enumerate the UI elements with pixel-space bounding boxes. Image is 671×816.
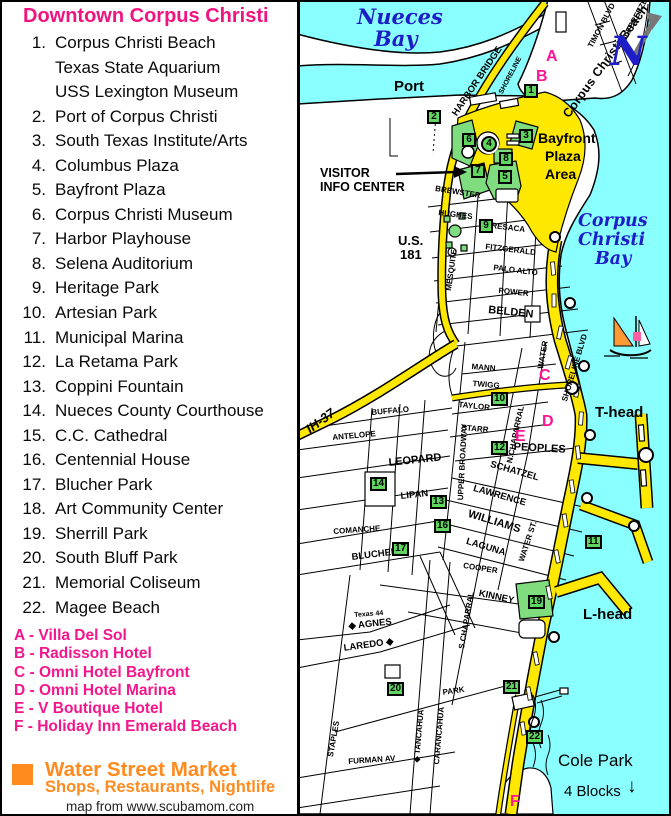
street-label-staples: STAPLES [326,720,341,757]
street-label-power: POWER [498,286,529,298]
legend-item-label: C.C. Cathedral [55,424,167,449]
map-credit: map from www.scubamom.com [66,799,254,814]
legend-item-19: 19.Sherrill Park [2,522,297,547]
street-label-laredo: LAREDO ◆ [343,636,394,654]
market-subtitle: Shops, Restaurants, Nightlife [45,779,275,796]
legend-item-label: Texas State Aquarium [55,56,220,81]
legend-item-label: Sherrill Park [55,522,148,547]
map-text-t-head: T-head [595,404,643,421]
street-label-antelope: ANTELOPE [332,429,376,442]
street-label-belden: BELDEN [488,304,534,321]
map-text-: ↓ [627,776,637,798]
legend-item-15: 15.C.C. Cathedral [2,424,297,449]
map-marker-11: 11 [585,535,602,549]
legend-item-number: 16. [2,448,55,473]
legend-item-number: 1. [2,31,55,56]
legend-hotels-list: A - Villa Del SolB - Radisson HotelC - O… [14,627,237,737]
legend-item-number: 17. [2,473,55,498]
street-label-park: PARK [442,685,465,697]
legend-hotel-c: C - Omni Hotel Bayfront [14,664,237,682]
water-street-market-entry: Water Street Market Shops, Restaurants, … [12,760,275,796]
legend-item-label: Columbus Plaza [55,154,179,179]
map-text-l-head: L-head [583,606,632,623]
street-label-furman-av: FURMAN AV [348,754,396,766]
map-letter-a: A [546,48,558,66]
map-letter-e: E [515,428,526,446]
legend-item-label: South Bluff Park [55,546,178,571]
legend-item-number: 18. [2,497,55,522]
street-label-lawrence: LAWRENCE [472,483,527,509]
legend-item-1-line3: USS Lexington Museum [2,80,297,105]
legend-item-17: 17.Blucher Park [2,473,297,498]
legend-item-1: 1.Corpus Christi Beach [2,31,297,56]
legend-item-label: La Retama Park [55,350,178,375]
map-text-christi: Christi [578,230,645,250]
map-marker-5: 5 [498,170,512,184]
legend-item-label: USS Lexington Museum [55,80,238,105]
legend-item-13: 13.Coppini Fountain [2,375,297,400]
street-label-brewster: BREWSTER [435,184,482,200]
street-label-shoreline: SHORELINE [498,56,523,95]
street-label-hughes: HUGHES [438,208,473,221]
map-marker-8: 8 [499,152,513,166]
legend-item-number: 14. [2,399,55,424]
legend-item-4: 4.Columbus Plaza [2,154,297,179]
map-marker-12: 12 [491,441,508,455]
map-text-u-s: U.S. [398,233,423,248]
map-text-visitor: VISITOR [320,166,370,180]
street-label-williams: WILLIAMS [466,508,522,535]
legend-item-label: Harbor Playhouse [55,227,191,252]
map-text-bay: Bay [595,249,631,269]
page-title: Downtown Corpus Christi [23,5,269,28]
street-label-laguna: LAGUNA [465,536,507,558]
legend-item-number: 5. [2,178,55,203]
legend-item-11: 11.Municipal Marina [2,326,297,351]
map-letter-c: C [539,367,551,385]
map-text-port: Port [394,78,424,95]
map-marker-2: 2 [427,110,441,124]
legend-item-number: 8. [2,252,55,277]
legend-item-number: 11. [2,326,55,351]
map-marker-17: 17 [392,542,409,556]
legend-list: 1.Corpus Christi BeachTexas State Aquari… [2,31,297,620]
market-title: Water Street Market [45,760,275,779]
legend-item-22: 22.Magee Beach [2,596,297,621]
legend-item-number: 22. [2,596,55,621]
map-marker-13: 13 [430,495,447,509]
map-text-plaza: Plaza [545,148,581,164]
legend-item-5: 5.Bayfront Plaza [2,178,297,203]
map-marker-3: 3 [519,129,533,143]
legend-item-label: Municipal Marina [55,326,184,351]
legend-item-21: 21.Memorial Coliseum [2,571,297,596]
map-text-corpus: Corpus [578,211,648,231]
legend-item-number: 12. [2,350,55,375]
map-text-bayfront: Bayfront [538,130,596,146]
map-text-ih-37: IH-37 [303,405,338,436]
legend-item-label: Coppini Fountain [55,375,184,400]
street-label-palo-alto: PALO ALTO [493,263,538,277]
legend-item-label: Centennial House [55,448,190,473]
legend-item-label: Selena Auditorium [55,252,193,277]
map-marker-10: 10 [491,392,508,406]
legend-item-number: 2. [2,105,55,130]
orange-square-icon [12,764,33,785]
legend-item-10: 10.Artesian Park [2,301,297,326]
street-label-kinney: KINNEY [478,588,515,606]
legend-item-label: Corpus Christi Museum [55,203,233,228]
map-letter-b: B [536,68,548,86]
street-label-fitzgerald: FITZGERALD [485,242,536,257]
street-label-carancahua: CARANCAHUA [432,706,446,764]
map-marker-4: 4 [481,136,497,152]
street-label-water: WATER [536,340,550,369]
legend-item-number: 4. [2,154,55,179]
street-label-taylor: TAYLOR [458,400,490,412]
map-text-bay: Bay [374,26,418,51]
legend-item-label: Nueces County Courthouse [55,399,264,424]
legend-item-label: Bayfront Plaza [55,178,166,203]
legend-item-number: 7. [2,227,55,252]
map-marker-9: 9 [479,219,493,233]
legend-item-label: Memorial Coliseum [55,571,200,596]
map-text-n: N [610,28,647,75]
legend-hotel-b: B - Radisson Hotel [14,645,237,663]
legend-item-7: 7.Harbor Playhouse [2,227,297,252]
street-label-lipan: LIPAN [400,488,429,502]
legend-item-2: 2.Port of Corpus Christi [2,105,297,130]
legend-item-number: 9. [2,276,55,301]
map-marker-16: 16 [434,519,451,533]
map-marker-14: 14 [370,477,387,491]
legend-hotel-a: A - Villa Del Sol [14,627,237,645]
legend-item-label: South Texas Institute/Arts [55,129,247,154]
street-label-resaca: RESACA [491,221,526,234]
legend-item-label: Blucher Park [55,473,152,498]
legend-hotel-d: D - Omni Hotel Marina [14,682,237,700]
street-label-tancahua: ◆ TANCAHUA [412,709,426,763]
legend-item-6: 6.Corpus Christi Museum [2,203,297,228]
street-label-buffalo: BUFFALO [371,405,409,417]
legend-item-8: 8.Selena Auditorium [2,252,297,277]
street-label-mann: MANN [471,362,496,373]
legend-item-20: 20.South Bluff Park [2,546,297,571]
legend-hotel-f: F - Holiday Inn Emerald Beach [14,718,237,736]
map-letter-d: D [542,413,554,431]
legend-item-number: 6. [2,203,55,228]
legend-item-number [2,80,55,105]
street-label-comanche: COMANCHE [333,524,381,536]
legend-item-number: 13. [2,375,55,400]
legend-item-16: 16.Centennial House [2,448,297,473]
legend-item-number [2,56,55,81]
map-marker-21: 21 [503,680,520,694]
street-label-cooper: COOPER [463,561,499,575]
street-label-s-chaparral: S.CHAPARRAL [457,591,476,649]
legend-item-3: 3.South Texas Institute/Arts [2,129,297,154]
legend-item-label: Magee Beach [55,596,160,621]
street-label-leopard: LEOPARD [388,451,442,468]
legend-item-number: 20. [2,546,55,571]
legend-panel: Downtown Corpus Christi 1.Corpus Christi… [0,0,300,816]
legend-item-number: 19. [2,522,55,547]
legend-item-label: Port of Corpus Christi [55,105,218,130]
map-text-info-center: INFO CENTER [320,180,405,194]
street-label-upper-broadway: UPPER BROADWAY [456,423,469,500]
legend-item-18: 18.Art Community Center [2,497,297,522]
street-label-mesquite: MESQUITE [444,249,459,292]
legend-item-number: 10. [2,301,55,326]
street-label-schatzel: SCHATZEL [489,459,540,483]
map-marker-6: 6 [462,133,476,147]
legend-item-14: 14.Nueces County Courthouse [2,399,297,424]
street-label-harbor-bridge: HARBOR BRIDGE [450,45,505,119]
map-text-cole-park: Cole Park [558,751,633,771]
legend-item-number: 21. [2,571,55,596]
map-letter-f: F [510,793,520,811]
legend-item-9: 9.Heritage Park [2,276,297,301]
street-label-twigg: TWIGG [472,379,500,390]
legend-item-label: Corpus Christi Beach [55,31,216,56]
legend-item-label: Heritage Park [55,276,159,301]
map-text-area: Area [545,166,576,182]
legend-item-number: 3. [2,129,55,154]
map-marker-20: 20 [387,682,404,696]
street-label-shoreline-blvd: SHORELINE BLVD [560,333,589,403]
legend-item-label: Art Community Center [55,497,223,522]
map-marker-7: 7 [471,164,485,178]
map-text-4-blocks: 4 Blocks [564,783,621,800]
legend-item-12: 12.La Retama Park [2,350,297,375]
legend-item-label: Artesian Park [55,301,157,326]
map-marker-1: 1 [524,84,538,98]
map-text-181: 181 [400,247,422,262]
map-marker-22: 22 [526,730,543,744]
downtown-corpus-christi-map: BREWSTERHUGHESRESACAFITZGERALDPALO ALTOP… [0,0,671,816]
legend-hotel-e: E - V Boutique Hotel [14,700,237,718]
legend-item-number: 15. [2,424,55,449]
map-marker-19: 19 [528,595,545,609]
legend-item-1-line2: Texas State Aquarium [2,56,297,81]
